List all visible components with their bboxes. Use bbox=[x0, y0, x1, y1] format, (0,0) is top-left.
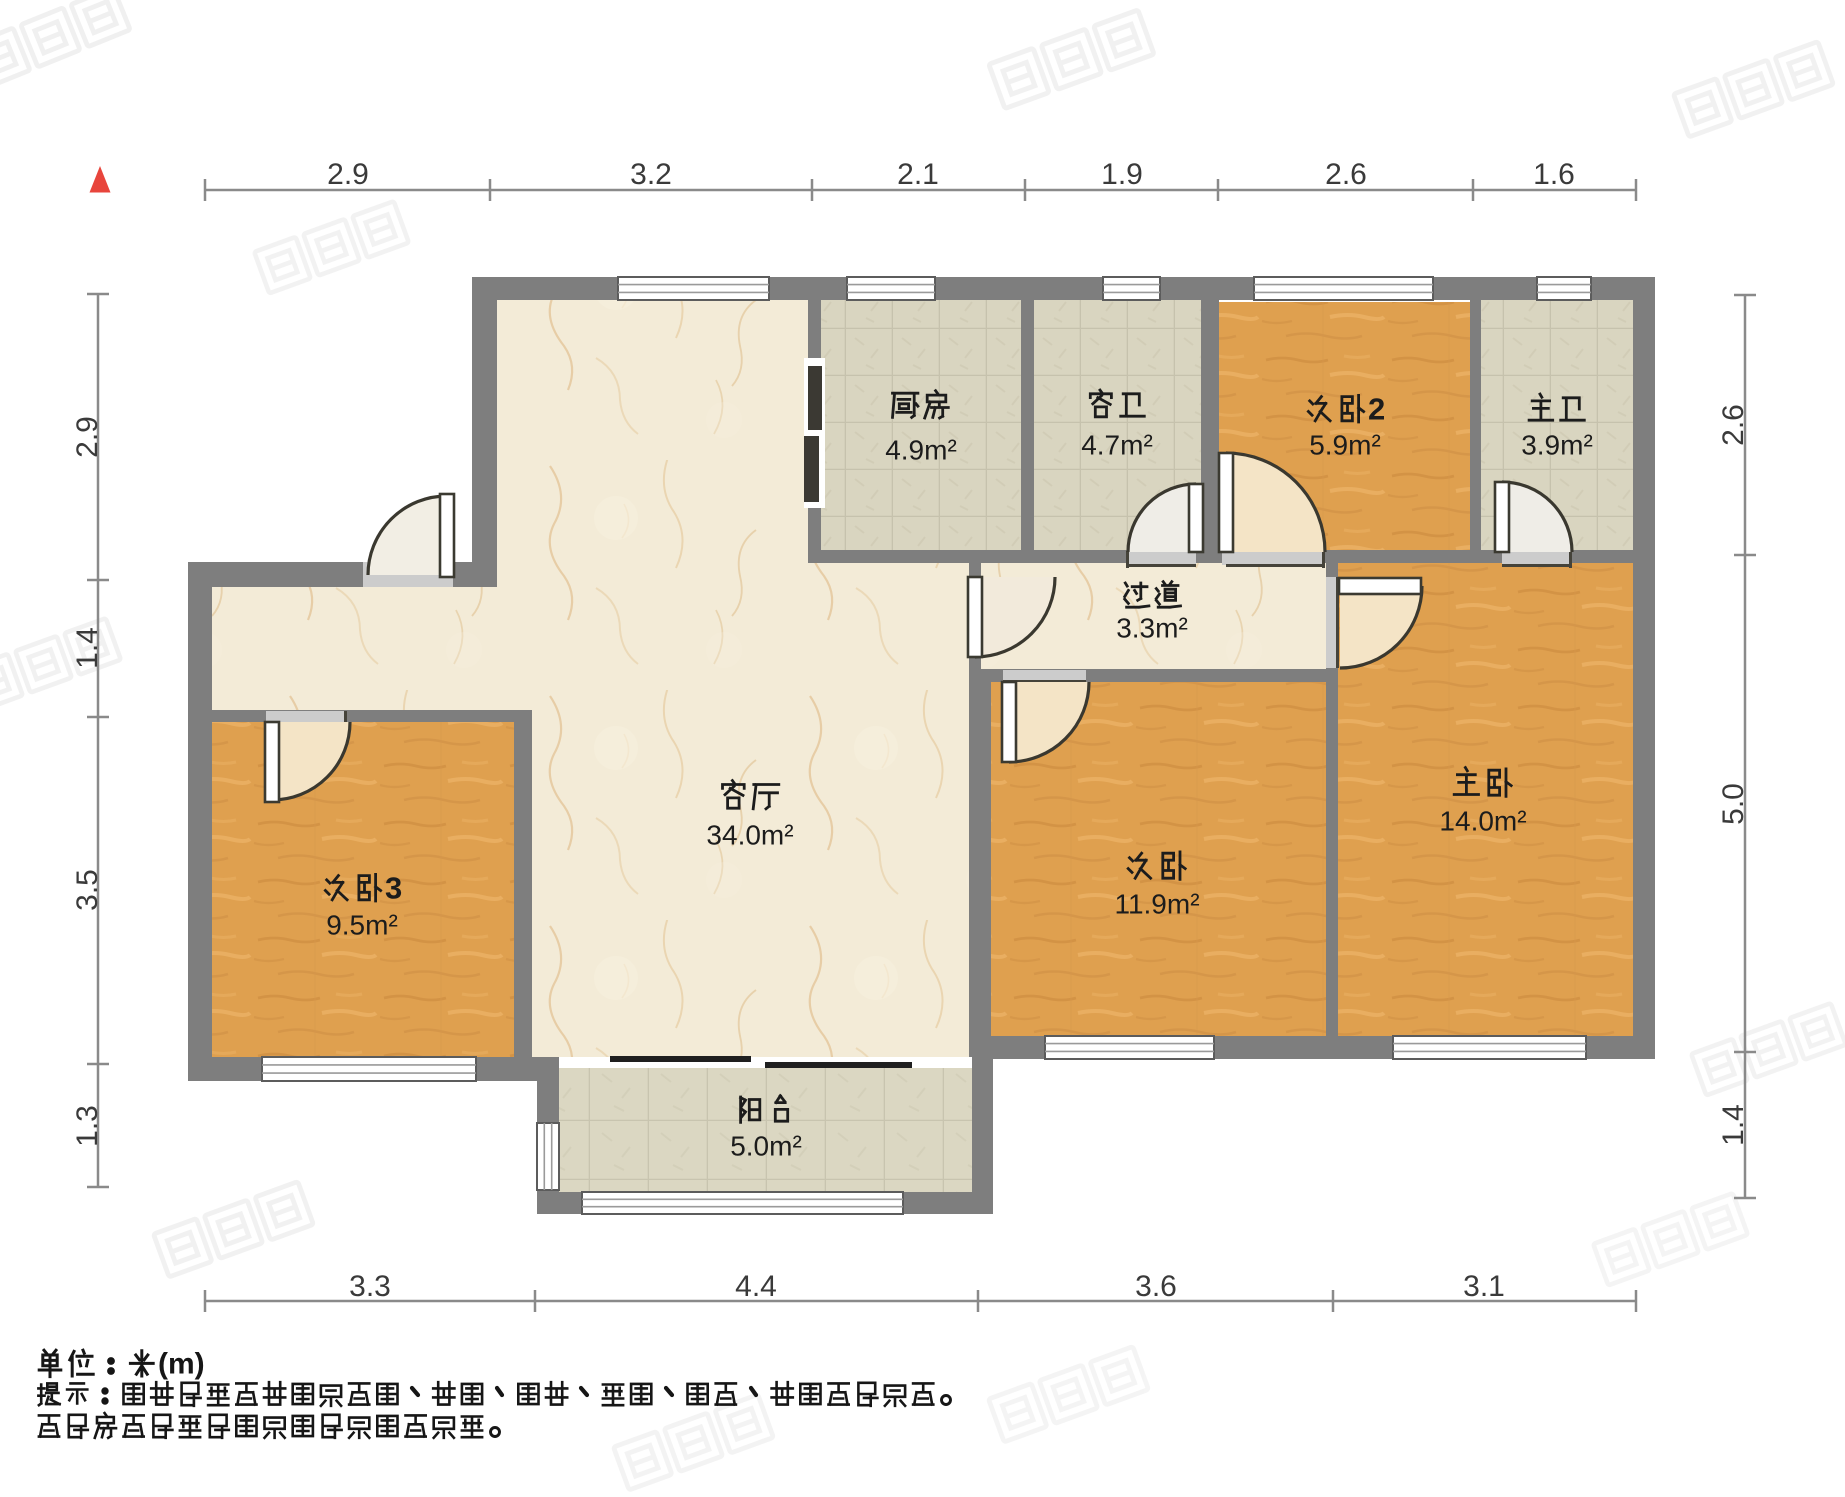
svg-text:14.0m²: 14.0m² bbox=[1439, 806, 1526, 837]
svg-text:9.5m²: 9.5m² bbox=[326, 910, 398, 941]
svg-text:34.0m²: 34.0m² bbox=[706, 820, 793, 851]
svg-text:3.1: 3.1 bbox=[1463, 1270, 1505, 1303]
svg-text:3.5: 3.5 bbox=[71, 869, 104, 911]
svg-text:3.3: 3.3 bbox=[349, 1270, 391, 1303]
svg-text:2.6: 2.6 bbox=[1717, 404, 1750, 446]
svg-text:11.9m²: 11.9m² bbox=[1114, 889, 1199, 920]
svg-text:1.3: 1.3 bbox=[71, 1105, 104, 1147]
svg-text:2.6: 2.6 bbox=[1325, 158, 1367, 191]
svg-text:5.9m²: 5.9m² bbox=[1309, 430, 1381, 461]
svg-text:3.3m²: 3.3m² bbox=[1116, 613, 1188, 644]
svg-text:4.4: 4.4 bbox=[735, 1270, 777, 1303]
svg-text:4.9m²: 4.9m² bbox=[885, 435, 957, 466]
svg-text:4.7m²: 4.7m² bbox=[1081, 430, 1153, 461]
svg-text:3.2: 3.2 bbox=[630, 158, 672, 191]
svg-text:1.4: 1.4 bbox=[71, 627, 104, 669]
svg-text:1.4: 1.4 bbox=[1717, 1104, 1750, 1146]
svg-text:1.6: 1.6 bbox=[1533, 158, 1575, 191]
svg-text:2: 2 bbox=[1368, 392, 1385, 427]
svg-text:2.9: 2.9 bbox=[71, 416, 104, 458]
svg-text:3.9m²: 3.9m² bbox=[1521, 430, 1593, 461]
svg-text:2.9: 2.9 bbox=[327, 158, 369, 191]
svg-text:3.6: 3.6 bbox=[1135, 1270, 1177, 1303]
svg-text:(m): (m) bbox=[158, 1348, 205, 1381]
svg-text:5.0: 5.0 bbox=[1717, 783, 1750, 825]
svg-text:1.9: 1.9 bbox=[1101, 158, 1143, 191]
svg-text:2.1: 2.1 bbox=[897, 158, 939, 191]
svg-text:5.0m²: 5.0m² bbox=[730, 1131, 802, 1162]
svg-text:3: 3 bbox=[385, 871, 402, 906]
